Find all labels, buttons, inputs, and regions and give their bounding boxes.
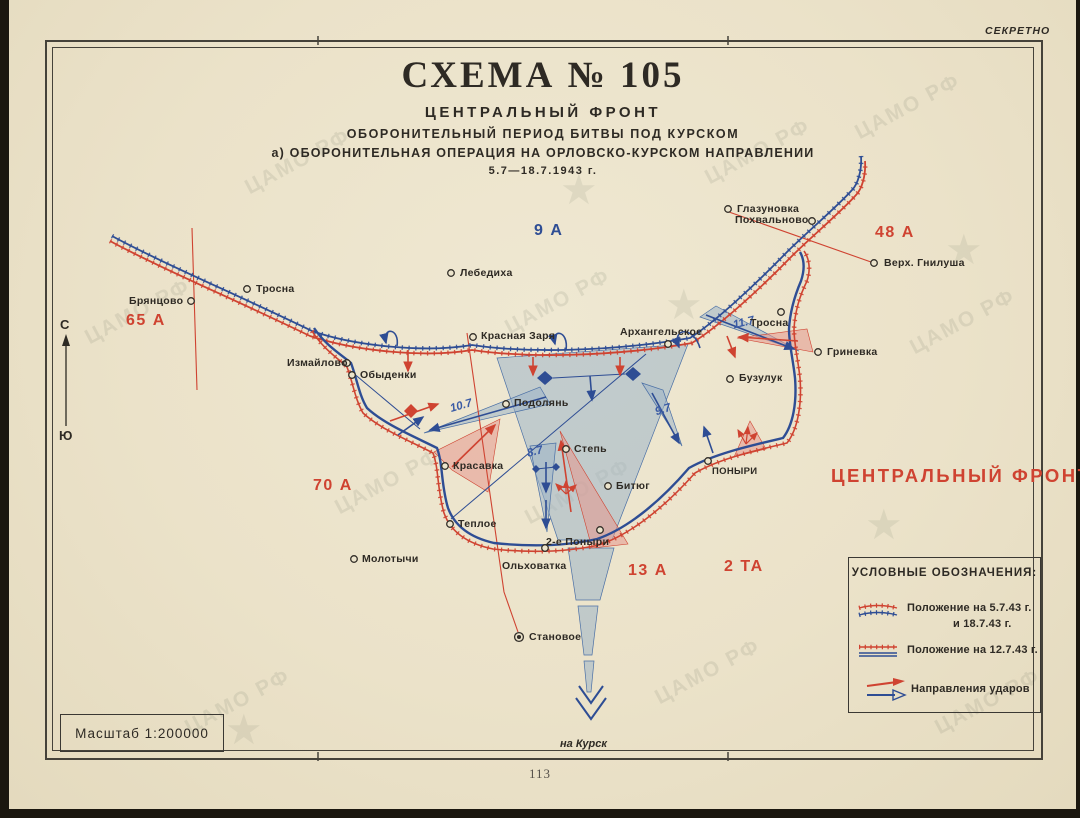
army-label-2ta: 2 ТА (724, 558, 764, 576)
title-dates: 5.7—18.7.1943 г. (243, 165, 843, 177)
town-label: Тросна (256, 283, 295, 295)
legend-item-1-label2: и 18.7.43 г. (953, 618, 1012, 630)
kursk-defense-map: ЦАМО РФ ЦАМО РФ ЦАМО РФ ЦАМО РФ ЦАМО РФ … (0, 0, 1080, 818)
legend-title: УСЛОВНЫЕ ОБОЗНАЧЕНИЯ: (849, 567, 1040, 579)
town-label: Красавка (453, 460, 503, 472)
town-label: Гриневка (827, 346, 878, 358)
legend-item-2-label: Положение на 12.7.43 г. (907, 644, 1038, 656)
army-label-48a: 48 А (875, 224, 915, 242)
legend-item-3-label: Направления ударов (911, 683, 1030, 695)
army-label-13a: 13 А (628, 562, 668, 580)
scale-box: Масштаб 1:200000 (60, 714, 224, 752)
town-label: ПОНЫРИ (712, 466, 757, 477)
map-title: СХЕМА № 105 (243, 54, 843, 97)
town-label: Тросна (750, 317, 789, 329)
town-label: Похвальново (735, 214, 809, 226)
town-label: Измайлово (287, 357, 348, 369)
title-period: ОБОРОНИТЕЛЬНЫЙ ПЕРИОД БИТВЫ ПОД КУРСКОМ (243, 127, 843, 141)
legend-symbol-front-5-7 (857, 602, 899, 620)
classification-label: СЕКРЕТНО (985, 25, 1050, 37)
town-label: Бузулук (739, 372, 783, 384)
town-label: Ольховатка (502, 560, 567, 572)
route-label-kursk: на Курск (560, 738, 607, 750)
title-block: СХЕМА № 105 ЦЕНТРАЛЬНЫЙ ФРОНТ ОБОРОНИТЕЛ… (243, 54, 843, 177)
legend-symbol-strike-arrows (863, 676, 909, 702)
title-front: ЦЕНТРАЛЬНЫЙ ФРОНТ (243, 104, 843, 121)
town-label: Молотычи (362, 553, 419, 565)
town-label: Становое (529, 631, 581, 643)
town-label: Архангельское (620, 326, 702, 338)
title-operation: а) ОБОРОНИТЕЛЬНАЯ ОПЕРАЦИЯ НА ОРЛОВСКО-К… (243, 146, 843, 160)
army-label-65a: 65 А (126, 312, 166, 330)
legend-box: УСЛОВНЫЕ ОБОЗНАЧЕНИЯ: Положение на 5.7.4… (848, 557, 1041, 713)
town-label: 2-е Поныри (546, 536, 609, 548)
page-number: 113 (500, 766, 580, 782)
legend-item-1-label: Положение на 5.7.43 г. (907, 602, 1032, 614)
town-label: Степь (574, 443, 607, 455)
town-label: Подолянь (514, 397, 569, 409)
army-label-9a: 9 А (534, 222, 563, 240)
town-label: Красная Заря (481, 330, 555, 342)
scale-label: Масштаб 1:200000 (75, 726, 209, 741)
compass-south-label: Ю (59, 428, 72, 443)
army-label-70a: 70 А (313, 477, 353, 495)
town-label: Теплое (458, 518, 497, 530)
town-label: Обыденки (360, 369, 417, 381)
town-label: Лебедиха (460, 267, 513, 279)
town-label: Верх. Гнилуша (884, 257, 965, 269)
town-label: Битюг (616, 480, 650, 492)
legend-symbol-front-12-7 (857, 642, 899, 658)
town-label: Брянцово (129, 295, 183, 307)
front-label: ЦЕНТРАЛЬНЫЙ ФРОНТ (831, 465, 1080, 487)
compass-north-label: С (60, 317, 69, 332)
